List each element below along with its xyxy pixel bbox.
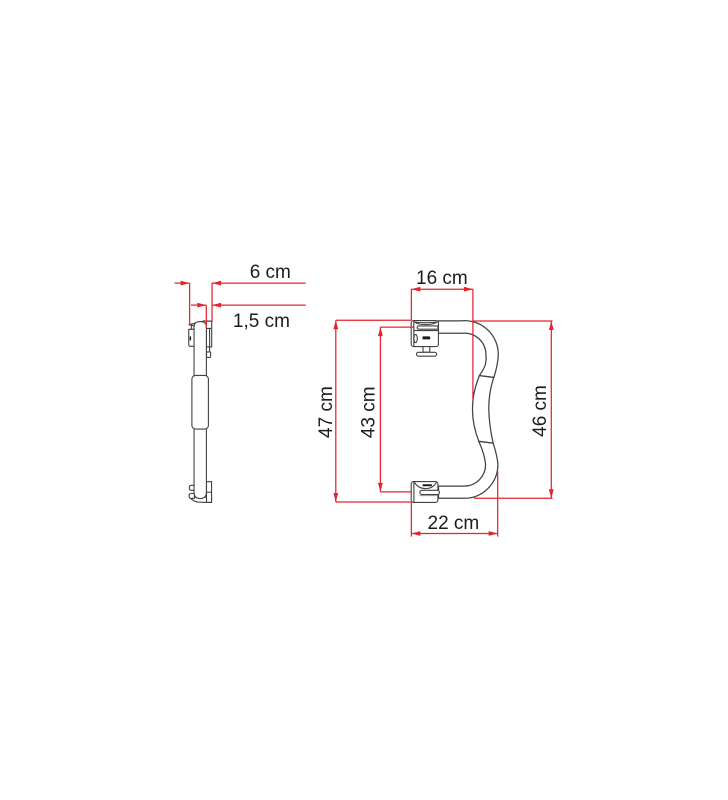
svg-text:16 cm: 16 cm (416, 268, 468, 289)
svg-text:46 cm: 46 cm (530, 385, 551, 437)
svg-text:22 cm: 22 cm (428, 513, 480, 534)
svg-text:47 cm: 47 cm (316, 386, 337, 438)
svg-text:1,5 cm: 1,5 cm (233, 311, 290, 332)
svg-text:43 cm: 43 cm (358, 386, 379, 438)
svg-text:6 cm: 6 cm (250, 262, 291, 283)
